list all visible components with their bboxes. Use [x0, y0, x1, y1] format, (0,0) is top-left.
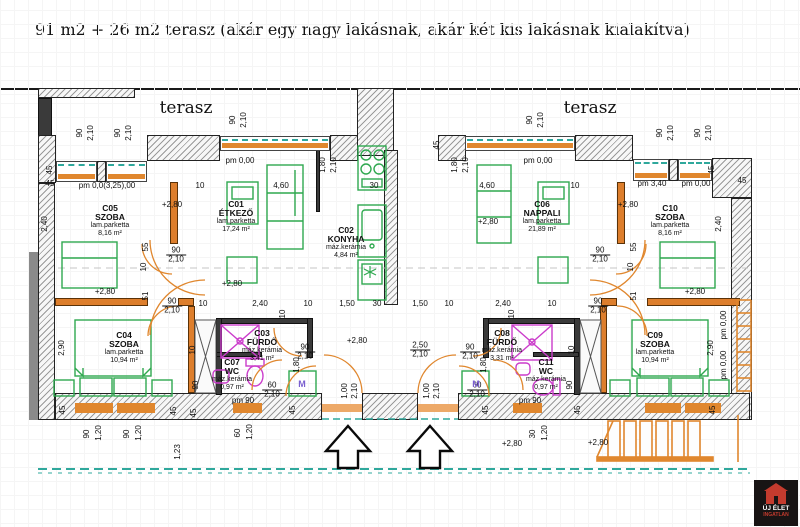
dimension-label: 45 [46, 180, 55, 188]
dimension-label: 902,10 [162, 298, 182, 315]
dimension-label: 2,502,10 [410, 342, 430, 359]
level-marker: pm 0,00 [682, 180, 711, 188]
dimension-label: 10 [196, 182, 205, 190]
dimension-label: 902,10 [460, 344, 480, 361]
dimension-label: 1,80 [319, 157, 327, 173]
dimension-label: 2,40 [252, 300, 268, 308]
dimension-label: 4,60 [273, 182, 289, 190]
terrace-label: terasz [160, 98, 213, 118]
dimension-label: 45 [574, 406, 582, 415]
level-marker: pm 0,00 [720, 311, 728, 340]
level-marker: pm 0,0(3,25),00 [79, 182, 135, 190]
dimension-label: 1,20 [246, 424, 254, 440]
terrace-label: terasz [564, 98, 617, 118]
dimension-label: 2,90 [707, 340, 715, 356]
house-icon [766, 491, 786, 504]
level-marker: +2,80 [95, 288, 115, 296]
dimension-label: 1,00 [341, 383, 349, 399]
dimension-label: 10 [571, 182, 580, 190]
dimension-label: 2,40 [41, 216, 49, 232]
level-marker: +2,80 [588, 439, 608, 447]
level-marker: pm 90 [519, 397, 541, 405]
dimension-label: 55 [630, 243, 638, 252]
dimension-label: 30 [529, 430, 537, 439]
dimension-label: 1,20 [135, 425, 143, 441]
dimension-label: 90 [76, 129, 84, 138]
dimension-label: 1,50 [339, 300, 355, 308]
dimension-label: 4,60 [479, 182, 495, 190]
dimension-label: 10 [140, 263, 148, 272]
level-marker: pm 0,00 [524, 157, 553, 165]
dimension-label: 10 [548, 300, 557, 308]
dimension-label: 90 [229, 116, 237, 125]
dimension-label: 60 [234, 429, 242, 438]
dimension-label: 45 [708, 166, 716, 175]
railing-right [737, 300, 751, 392]
dimension-label: 2,10 [537, 112, 545, 128]
dimension-label: 10 [627, 263, 635, 272]
level-marker: pm 3,40 [638, 180, 667, 188]
dimension-label: 45 [170, 407, 178, 416]
level-marker: pm 0,00 [720, 351, 728, 380]
level-marker: +2,80 [222, 280, 242, 288]
dimension-label: 45 [59, 406, 67, 415]
dimension-label: 45 [738, 177, 747, 185]
dimension-label: 2,10 [667, 125, 675, 141]
dimension-label: 30 [370, 182, 379, 190]
dimension-label: 2,40 [495, 300, 511, 308]
dimension-label: 45 [190, 409, 198, 418]
dimension-label: 45 [482, 406, 490, 415]
room-label-c02: C02KONYHAmáz.kerámia4,84 m² [298, 226, 394, 260]
room-label-c06: C06NAPPALIlam.parketta21,89 m² [494, 200, 590, 234]
dimension-label: 90 [656, 129, 664, 138]
room-label-c01: C01ÉTKEZŐlam.parketta17,24 m² [188, 200, 284, 234]
level-marker: +2,80 [347, 337, 367, 345]
dimension-label: 45 [433, 141, 441, 150]
dimension-label: 90 [526, 116, 534, 125]
dimension-label: 90 [566, 381, 574, 390]
dimension-label: 10 [445, 300, 454, 308]
agency-tagline: INGATLAN [754, 512, 798, 518]
level-marker: +2,80 [162, 201, 182, 209]
agency-name: ÚJ ÉLET [754, 505, 798, 512]
kitchen-cabinet [358, 260, 386, 300]
dimension-label: 2,10 [433, 383, 441, 399]
dimension-label: 30 [373, 300, 382, 308]
dimension-label: 1,20 [541, 425, 549, 441]
washing-machine-label: M [472, 380, 480, 388]
dimension-label: 1,20 [95, 425, 103, 441]
room-label-c04: C04SZOBAlam.parketta10,94 m² [76, 331, 172, 365]
dimension-label: 51 [142, 292, 150, 301]
washing-machine-label: M [298, 380, 306, 388]
room-label-c10: C10SZOBAlam.parketta8,16 m² [622, 204, 718, 238]
bed-c05 [62, 242, 117, 288]
bed-c10 [660, 242, 715, 288]
dimension-label: 902,10 [588, 298, 608, 315]
room-label-c05: C05SZOBAlam.parketta8,16 m² [62, 204, 158, 238]
level-marker: +2,80 [618, 201, 638, 209]
dimension-label: 2,10 [87, 125, 95, 141]
dimension-label: 2,90 [58, 340, 66, 356]
dimension-label: 1,00 [423, 383, 431, 399]
dimension-label: 10 [568, 346, 576, 355]
dimension-label: 2,10 [462, 157, 470, 173]
level-marker: +2,80 [502, 440, 522, 448]
dimension-label: 1,50 [412, 300, 428, 308]
dimension-label: 1,23 [174, 444, 182, 460]
dimension-label: 602,10 [262, 382, 282, 399]
dimension-label: 2,10 [125, 125, 133, 141]
level-marker: pm 0,00 [226, 157, 255, 165]
entrance-arrow-icon-right [408, 426, 452, 468]
dimension-label: 1,80 [293, 357, 301, 373]
dimension-label: 45 [289, 406, 297, 415]
dimension-label: 2,10 [351, 383, 359, 399]
dimension-label: 90 [192, 381, 200, 390]
floor-plan-page: 91 m2 + 26 m2 terasz (akár egy nagy laká… [0, 0, 800, 527]
dimension-label: 2,40 [715, 216, 723, 232]
dimension-label: 2,10 [705, 125, 713, 141]
dimension-label: 1,80 [451, 157, 459, 173]
dimension-label: 10 [508, 310, 516, 319]
agency-logo: ÚJ ÉLET INGATLAN [754, 480, 798, 526]
floor-plan: teraszteraszC05SZOBAlam.parketta8,16 m²C… [0, 0, 800, 527]
staircase [597, 415, 738, 462]
entrance-arrow-icon-left [326, 426, 370, 468]
dimension-label: 10 [279, 310, 287, 319]
room-label-c09: C09SZOBAlam.parketta10,94 m² [607, 331, 703, 365]
dimension-label: 90 [83, 430, 91, 439]
dimension-label: 51 [630, 292, 638, 301]
dimension-label: 10 [189, 346, 197, 355]
dimension-label: 902,10 [166, 247, 186, 264]
level-marker: +2,80 [685, 288, 705, 296]
room-label-c11: C11WCmáz.kerámia0,97 m² [498, 358, 594, 392]
dimension-label: 90 [114, 129, 122, 138]
dimension-label: 10 [199, 300, 208, 308]
level-marker: +2,80 [478, 218, 498, 226]
dimension-label: 10 [304, 300, 313, 308]
dimension-label: 90 [694, 129, 702, 138]
dimension-label: 45 [709, 406, 717, 415]
dimension-label: 45 [46, 166, 54, 175]
dimension-label: 2,10 [240, 112, 248, 128]
dimension-label: 902,10 [590, 247, 610, 264]
dimension-label: 1,80 [480, 357, 488, 373]
dimension-label: 90 [123, 430, 131, 439]
dimension-label: 55 [142, 243, 150, 252]
level-marker: pm 90 [232, 397, 254, 405]
chair-nappali [538, 257, 568, 283]
dimension-label: 2,10 [330, 157, 338, 173]
